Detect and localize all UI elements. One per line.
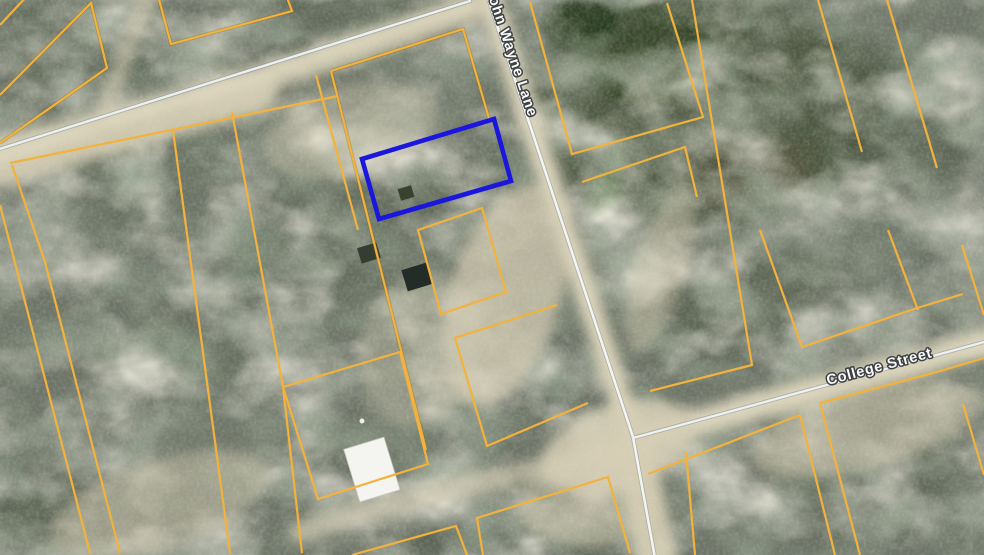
- terrain-grain: [0, 0, 984, 555]
- map-canvas[interactable]: John Wayne Lane College Street: [0, 0, 984, 555]
- map-viewport[interactable]: John Wayne Lane College Street: [0, 0, 984, 555]
